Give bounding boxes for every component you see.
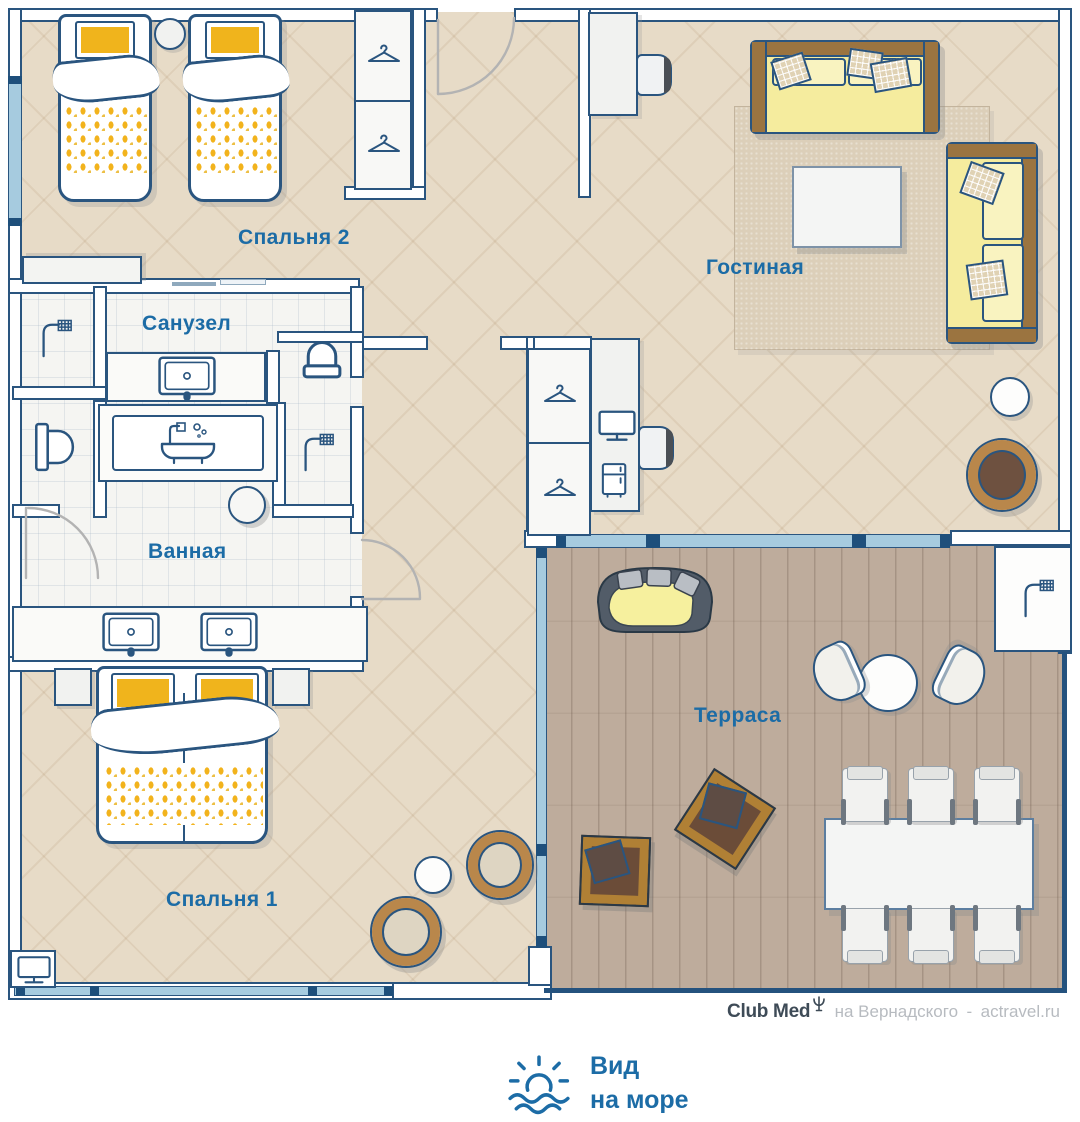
terrace-railing-bottom (544, 988, 1067, 993)
room-label-wc: Санузел (142, 312, 231, 336)
sea-view-line1: Вид (590, 1050, 689, 1084)
window-mullion (384, 986, 393, 996)
hanger-icon (366, 134, 402, 154)
wardrobe-divider (356, 100, 410, 102)
room-label-terrace: Терраса (694, 704, 781, 728)
dining-chair (908, 908, 954, 962)
dining-chair (974, 768, 1020, 822)
sofa-arm (948, 144, 1036, 159)
dining-chair (842, 908, 888, 962)
lounge-pillow (584, 839, 631, 884)
floor-plan: Спальня 2 Гостиная (0, 0, 1080, 1122)
entry-chair (636, 54, 672, 96)
wall-terrace-shower-top (950, 530, 1072, 546)
sun-sea-icon (506, 1052, 572, 1116)
nightstand (272, 668, 310, 706)
throw-pillow (966, 260, 1009, 301)
desk-chair (638, 426, 674, 470)
bathtub-icon (156, 420, 220, 468)
sink-icon (200, 612, 258, 658)
shower-icon (298, 430, 336, 476)
pillow (205, 21, 265, 59)
sofa-horizontal (750, 40, 940, 134)
dining-chair (908, 768, 954, 822)
sofa-arm (948, 327, 1036, 342)
trident-icon (812, 995, 826, 1013)
window-mullion (646, 534, 660, 548)
terrace-table-round (858, 654, 918, 712)
dining-table (824, 818, 1034, 910)
wardrobe-divider (529, 442, 589, 444)
wall-shower2-stub (272, 504, 354, 518)
duvet-fold (181, 52, 291, 107)
basket-seat (978, 450, 1026, 500)
window-mullion (536, 936, 547, 948)
brand-clubmed: Club Med (727, 1001, 810, 1022)
window-mullion (8, 218, 22, 226)
twin-bed-left (58, 14, 152, 202)
footer-credit: Club Med на Вернадского - actravel.ru (0, 999, 1060, 1023)
coffee-table (792, 166, 902, 248)
hanger-icon (542, 384, 578, 404)
minibar-icon (601, 462, 629, 498)
twin-bed-right (188, 14, 282, 202)
toilet-icon (34, 420, 82, 474)
dining-chair (842, 768, 888, 822)
basket-chair (466, 830, 534, 900)
window-mullion (8, 76, 22, 84)
wall-wc-nook-stub (12, 504, 60, 518)
dresser (22, 256, 142, 284)
throw-pillow (870, 57, 913, 93)
room-label-living: Гостиная (706, 256, 804, 280)
hanger-icon (366, 44, 402, 64)
sofa-vertical (946, 142, 1038, 344)
terrace-shower-room (994, 546, 1072, 652)
lounge-chair (579, 835, 651, 907)
entry-console (588, 12, 638, 116)
sofa-back (752, 42, 938, 57)
basket-chair (966, 438, 1038, 512)
nightstand (54, 668, 92, 706)
wall-wardrobe-right (412, 8, 426, 200)
bathtub-counter (98, 404, 278, 482)
bath-stool (228, 486, 266, 524)
side-table-round (414, 856, 452, 894)
wardrobe-entry (354, 10, 412, 190)
sea-view-text: Вид на море (590, 1050, 689, 1118)
window-bedroom1-terrace (536, 548, 547, 948)
window-living-terrace (556, 534, 950, 548)
window-mullion (90, 986, 99, 996)
sliding-door (220, 279, 266, 285)
room-label-bath: Ванная (148, 540, 227, 564)
room-label-bedroom2: Спальня 2 (238, 226, 350, 250)
terrace-railing-right (1062, 652, 1067, 990)
sea-view-line2: на море (590, 1084, 689, 1118)
sink-icon (158, 356, 216, 402)
window-mullion (556, 534, 566, 548)
duvet-fold (51, 52, 161, 107)
blanket (63, 103, 147, 175)
footer-location: на Вернадского (835, 1002, 958, 1021)
window-mullion (536, 844, 547, 856)
room-label-bedroom1: Спальня 1 (166, 888, 278, 912)
toilet-icon (300, 336, 344, 382)
shower-icon (1018, 576, 1056, 622)
blanket (103, 763, 263, 825)
footer-separator: - (967, 1002, 973, 1021)
sofa-arm (923, 42, 938, 132)
shower-icon (36, 316, 74, 362)
side-table-round (990, 377, 1030, 417)
pillow (75, 21, 135, 59)
window-mullion (536, 548, 547, 558)
footer-site: actravel.ru (981, 1002, 1060, 1021)
basket-seat (382, 908, 430, 956)
wardrobe-hall (527, 348, 591, 536)
window-mullion (308, 986, 317, 996)
window-bedroom2-left (8, 82, 22, 220)
wall-vanity-partition (266, 350, 280, 404)
tv-stand (10, 950, 56, 988)
wall-shower-stall-right (93, 286, 107, 400)
blanket (193, 103, 277, 175)
wall-hall-stub-left (362, 336, 428, 350)
lounge-pillow (699, 783, 748, 830)
sink-icon (102, 612, 160, 658)
wall-shower-stall-bottom (12, 386, 107, 400)
outdoor-sofa (588, 562, 722, 636)
dining-chair (974, 908, 1020, 962)
window-mullion (940, 534, 950, 548)
wall-corner-vertical (528, 946, 552, 986)
nightstand-round (154, 18, 186, 50)
tv-icon (17, 955, 51, 985)
sea-view-badge: Вид на море (506, 1050, 689, 1118)
double-bed (96, 666, 268, 844)
sliding-door (172, 282, 216, 286)
hanger-icon (542, 478, 578, 498)
sofa-arm (752, 42, 767, 132)
basket-chair (370, 896, 442, 968)
tv-icon (598, 410, 636, 442)
window-bedroom1-bottom (14, 986, 394, 996)
basket-seat (478, 842, 522, 888)
double-vanity (12, 606, 368, 662)
window-mullion (852, 534, 866, 548)
